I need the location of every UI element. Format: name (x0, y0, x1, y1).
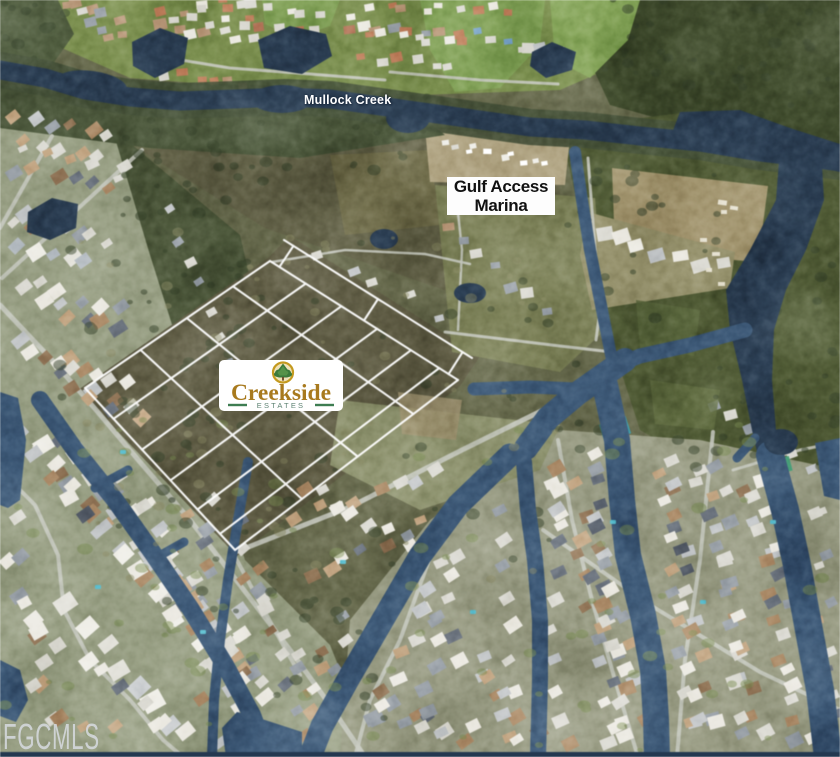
svg-text:ESTATES: ESTATES (257, 401, 305, 410)
